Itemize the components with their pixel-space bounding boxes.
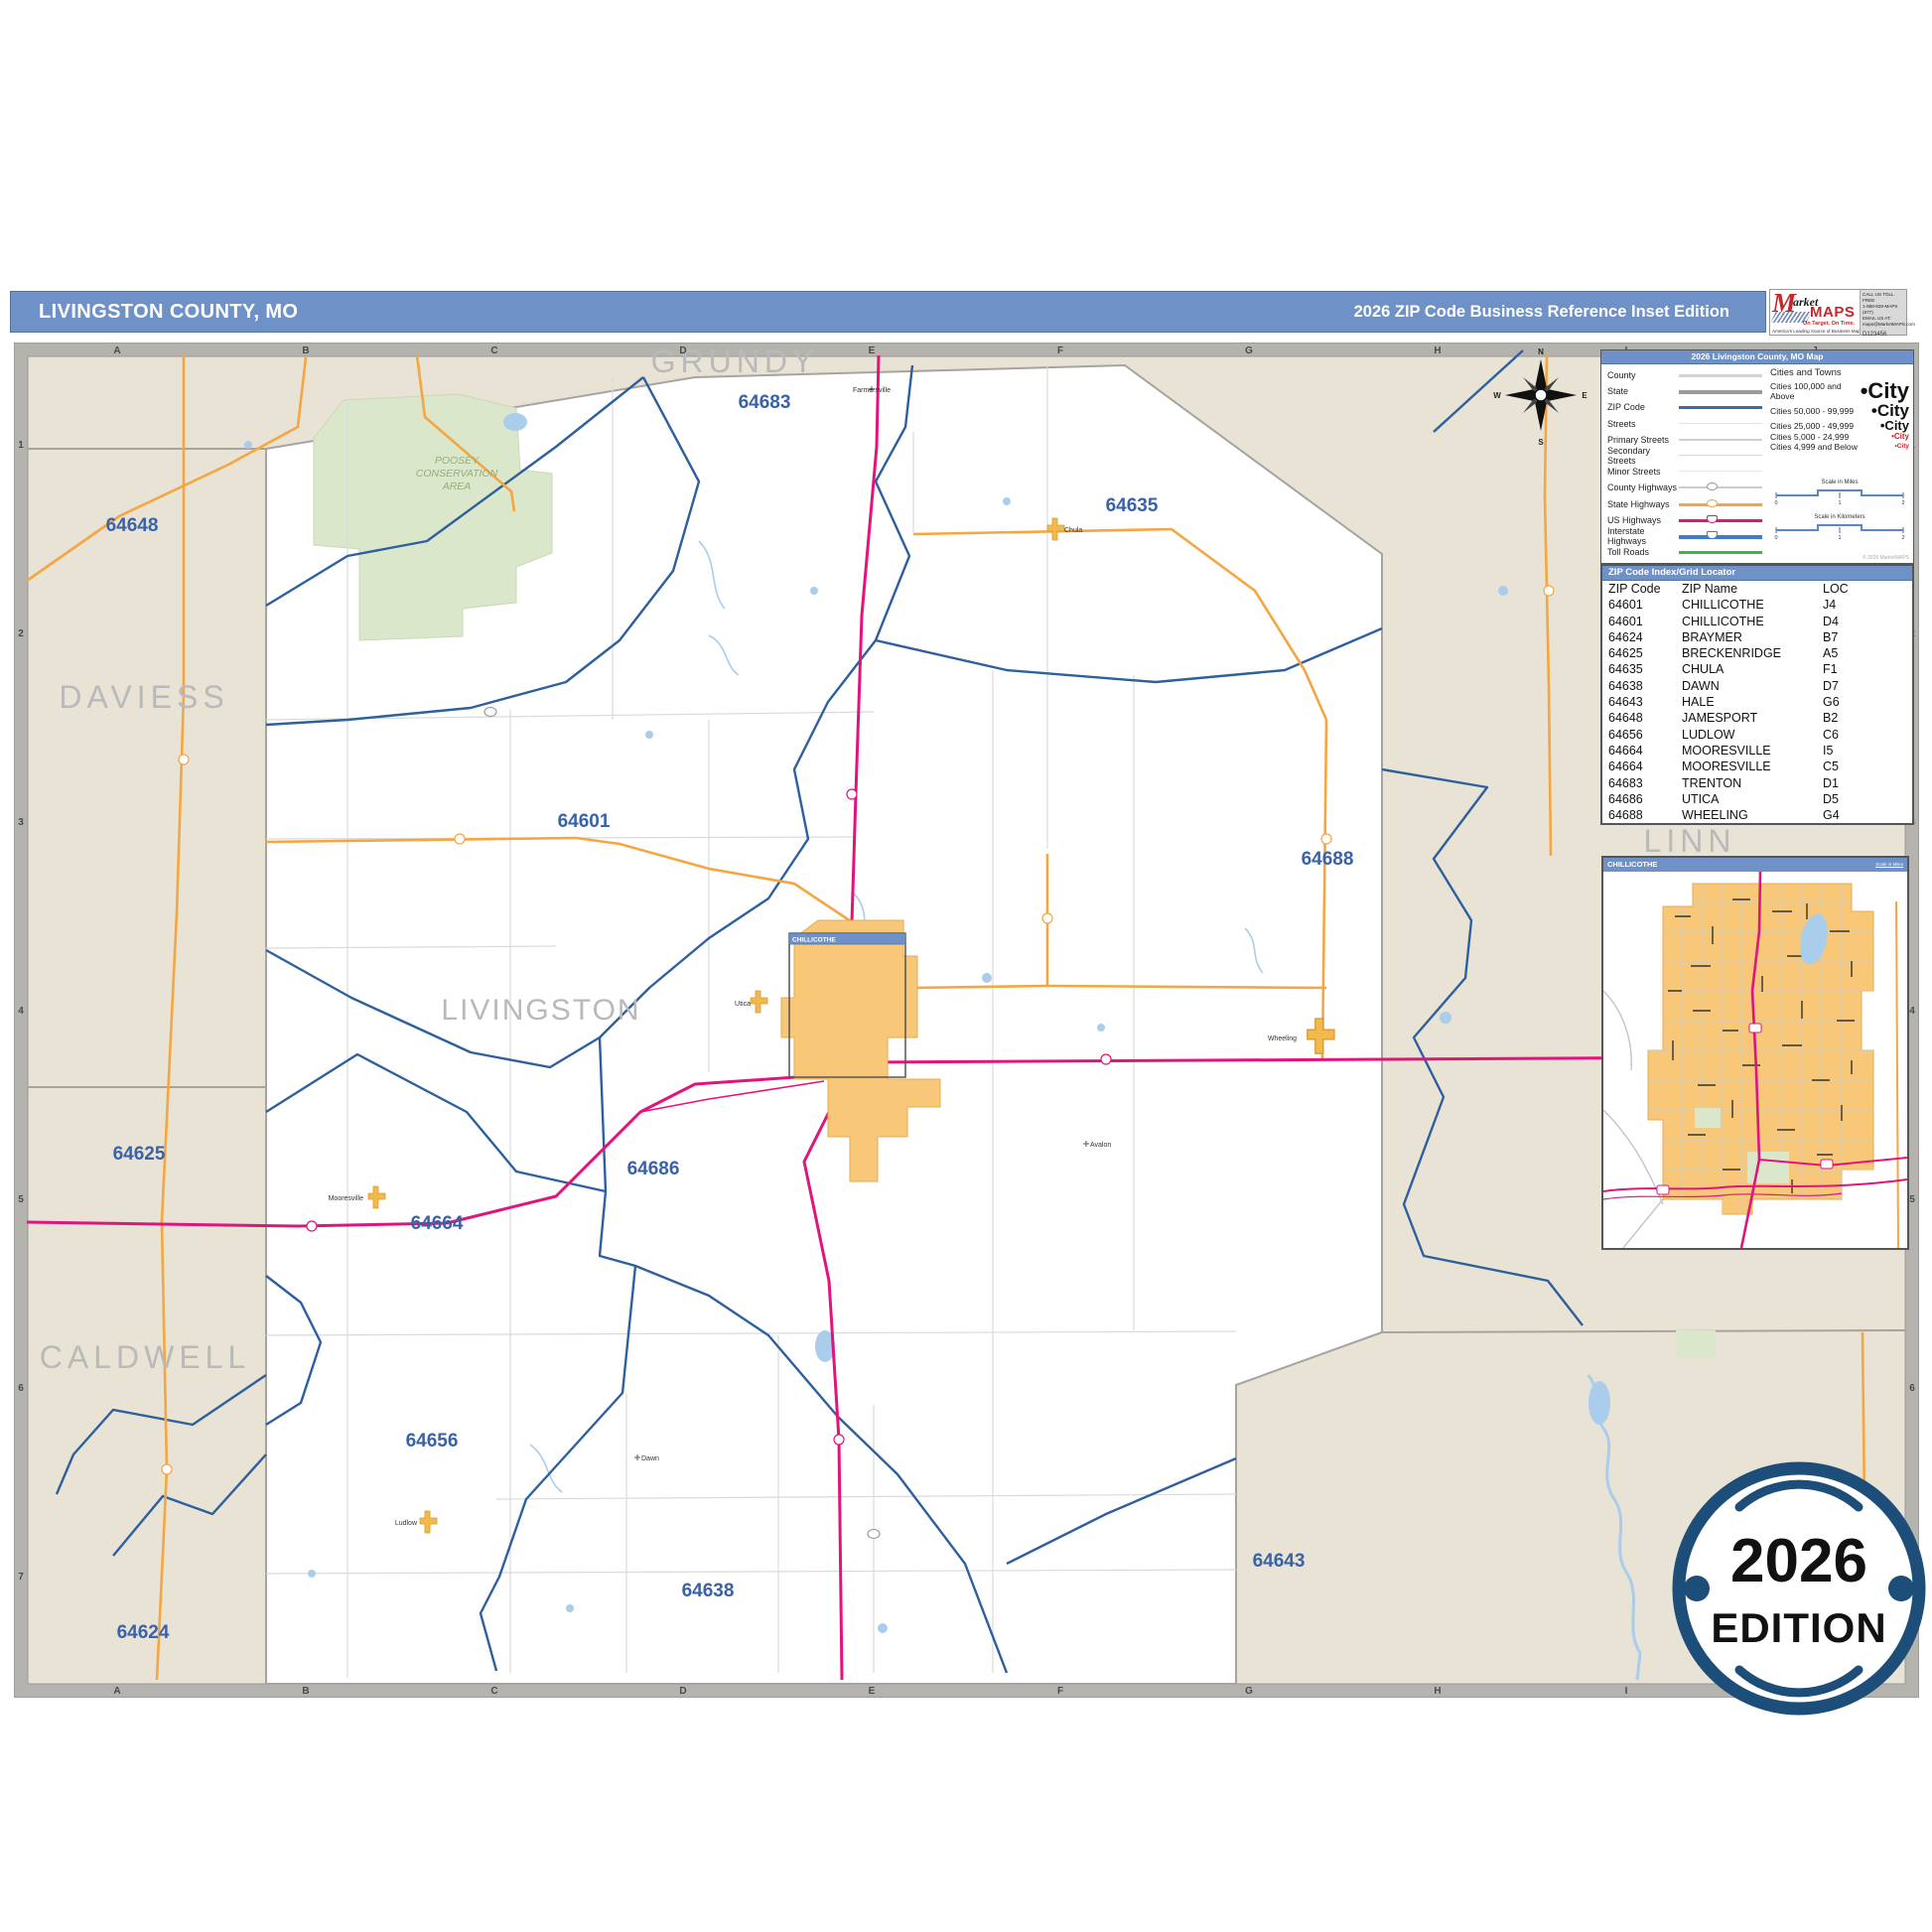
legend-row-label: Minor Streets [1607, 467, 1679, 477]
town-label: Chula [1064, 527, 1082, 534]
legend-line-sample [1679, 419, 1762, 429]
zip-table-row: 64601CHILLICOTHEJ4 [1602, 597, 1912, 613]
title-bar: LIVINGSTON COUNTY, MO 2026 ZIP Code Busi… [10, 291, 1766, 333]
legend-line-sample [1679, 451, 1762, 461]
grid-row-label: 4 [1909, 1006, 1915, 1017]
legend-row-label: County [1607, 370, 1679, 380]
grid-column-label: A [113, 1686, 120, 1697]
scale-tick-label: 0 [1774, 535, 1777, 540]
grid-column-label: F [1057, 1686, 1063, 1697]
zip-index-title: ZIP Code Index/Grid Locator [1602, 566, 1912, 581]
zip-table-cell: 64635 [1608, 661, 1682, 677]
legend-line-sample [1679, 499, 1762, 509]
inset-title: CHILLICOTHE [1607, 858, 1657, 872]
county-label: CALDWELL [40, 1339, 251, 1375]
zip-label: 64688 [1302, 849, 1354, 870]
page-title: LIVINGSTON COUNTY, MO [11, 301, 298, 324]
zip-table-cell: D1 [1823, 775, 1878, 791]
town-label: Mooresville [329, 1195, 364, 1202]
inset-scale-label: Scale in Miles [1875, 862, 1903, 868]
zip-table-row: 64656LUDLOWC6 [1602, 727, 1912, 743]
town-label: Farmersville [853, 387, 891, 394]
grid-column-label: H [1434, 1686, 1441, 1697]
zip-table-cell: 64683 [1608, 775, 1682, 791]
scale-tick-label: 1 [1838, 535, 1841, 540]
legend-row-label: State Highways [1607, 499, 1679, 509]
city-size-sample: •City [1880, 419, 1909, 432]
city-size-row: Cities 4,999 and Below•City [1770, 442, 1909, 452]
zip-table-cell: HALE [1682, 694, 1823, 710]
grid-row-label: 2 [18, 628, 24, 639]
legend-row: Secondary Streets [1607, 448, 1764, 464]
legend-row-label: State [1607, 386, 1679, 396]
legend-row: State Highways [1607, 496, 1764, 512]
zip-table-row: 64643HALEG6 [1602, 694, 1912, 710]
town-label: Dawn [641, 1455, 659, 1462]
city-size-sample: •City [1861, 380, 1909, 402]
town-label: Avalon [1090, 1142, 1111, 1149]
grid-column-label: I [1625, 1686, 1628, 1697]
city-size-sample: •City [1894, 444, 1909, 451]
zip-table-row: 64601CHILLICOTHED4 [1602, 614, 1912, 629]
zip-label: 64683 [739, 392, 791, 413]
zip-table-cell: J4 [1823, 597, 1878, 613]
logo-subline: America's Leading Source of Business Map… [1772, 329, 1860, 334]
legend-row-label: US Highways [1607, 515, 1679, 525]
zip-table-cell: 64643 [1608, 694, 1682, 710]
grid-column-label: F [1057, 345, 1063, 356]
legend-row: County Highways [1607, 480, 1764, 495]
zip-table-cell: B7 [1823, 629, 1878, 645]
area-label: CONSERVATION [416, 468, 498, 480]
zip-table-row: 64664MOORESVILLEI5 [1602, 743, 1912, 759]
svg-text:W: W [1493, 391, 1501, 400]
grid-row-label: 4 [18, 1006, 24, 1017]
zip-table-cell: C5 [1823, 759, 1878, 774]
city-size-label: Cities 5,000 - 24,999 [1770, 432, 1849, 442]
legend-row-label: Interstate Highways [1607, 526, 1679, 546]
svg-text:E: E [1582, 391, 1587, 400]
inset-canvas [1603, 872, 1907, 1248]
legend-row-label: County Highways [1607, 483, 1679, 492]
zip-table-cell: TRENTON [1682, 775, 1823, 791]
legend-cities: Cities and Towns Cities 100,000 and Abov… [1770, 367, 1909, 452]
grid-column-label: B [302, 1686, 309, 1697]
inset-park-2 [1695, 1108, 1721, 1128]
zip-table-cell: 64601 [1608, 614, 1682, 629]
zip-table-cell: D5 [1823, 791, 1878, 807]
us-shield-icon [1707, 515, 1718, 523]
badge-left-dot [1684, 1576, 1710, 1601]
town-label: Utica [735, 1001, 751, 1008]
zip-label: 64638 [682, 1581, 735, 1601]
chillicothe-inset: CHILLICOTHE Scale in Miles [1601, 856, 1909, 1250]
zip-table-row: 64638DAWND7 [1602, 678, 1912, 694]
zip-table-cell: LUDLOW [1682, 727, 1823, 743]
zip-table-cell: G6 [1823, 694, 1878, 710]
zip-table-cell: WHEELING [1682, 807, 1823, 823]
grid-column-label: G [1245, 1686, 1253, 1697]
legend-body: CountyStateZIP CodeStreetsPrimary Street… [1601, 364, 1913, 563]
city-size-sample: •City [1871, 402, 1909, 419]
zip-table-cell: UTICA [1682, 791, 1823, 807]
legend-row-label: Secondary Streets [1607, 446, 1679, 466]
grid-row-label: 1 [18, 440, 24, 451]
zip-table-row: 64624BRAYMERB7 [1602, 629, 1912, 645]
city-size-row: Cities 5,000 - 24,999•City [1770, 432, 1909, 442]
zip-table-cell: JAMESPORT [1682, 710, 1823, 726]
zip-label: 64686 [627, 1159, 680, 1179]
zip-table-cell: CHILLICOTHE [1682, 597, 1823, 613]
zip-label: 64643 [1253, 1551, 1306, 1572]
zip-table-cell: 64688 [1608, 807, 1682, 823]
zip-label: 64624 [117, 1622, 170, 1643]
grid-column-label: D [679, 1686, 686, 1697]
town-label: Ludlow [395, 1520, 418, 1527]
logo-maps: MAPS [1810, 304, 1855, 321]
county-label: LINN [1644, 823, 1736, 859]
svg-text:N: N [1538, 347, 1544, 356]
zip-table-cell: 64664 [1608, 743, 1682, 759]
zip-table-cell: CHILLICOTHE [1682, 614, 1823, 629]
legend-line-sample [1679, 531, 1762, 541]
marketmaps-logo: M arket MAPS On Target. On Time. America… [1769, 289, 1907, 336]
scale-title: Scale in Kilometers [1814, 514, 1864, 520]
zip-table-row: 64683TRENTOND1 [1602, 775, 1912, 791]
county-label: LIVINGSTON [441, 994, 640, 1027]
scale-miles: Scale in Miles012 [1770, 476, 1909, 510]
scale-title: Scale in Miles [1821, 480, 1858, 485]
zip-table-header-cell: ZIP Name [1682, 581, 1823, 597]
scale-kilometers: Scale in Kilometers012 [1770, 510, 1909, 545]
scale-tick-label: 0 [1774, 500, 1777, 505]
city-size-label: Cities 50,000 - 99,999 [1770, 406, 1854, 416]
zip-table-cell: BRAYMER [1682, 629, 1823, 645]
edition-badge: 2026 EDITION [1668, 1457, 1930, 1720]
oval-shield-icon [1707, 483, 1718, 490]
zip-table-cell: BRECKENRIDGE [1682, 645, 1823, 661]
badge-right-dot [1888, 1576, 1914, 1601]
legend-line-sample [1679, 435, 1762, 445]
grid-row-label: 5 [18, 1194, 24, 1205]
scale-tick-label: 2 [1901, 500, 1904, 505]
zip-table-cell: G4 [1823, 807, 1878, 823]
scale-bars: Scale in Miles012 Scale in Kilometers012 [1770, 476, 1909, 545]
inset-title-bar: CHILLICOTHE Scale in Miles [1603, 858, 1907, 872]
zip-table-cell: 64686 [1608, 791, 1682, 807]
inset-park [1747, 1152, 1789, 1183]
badge-year: 2026 [1730, 1527, 1867, 1595]
grid-row-label: 6 [18, 1383, 24, 1394]
grid-row-label: 7 [18, 1572, 24, 1583]
legend-row: Streets [1607, 416, 1764, 432]
zip-table-header-cell: ZIP Code [1608, 581, 1682, 597]
zip-table-row: 64625BRECKENRIDGEA5 [1602, 645, 1912, 661]
city-size-label: Cities 4,999 and Below [1770, 442, 1858, 452]
legend-line-sample [1679, 370, 1762, 380]
svg-text:S: S [1538, 438, 1544, 447]
grid-column-label: B [302, 345, 309, 356]
legend-row: Toll Roads [1607, 544, 1764, 560]
product-code: D123456 [1863, 332, 1904, 338]
city-size-label: Cities 100,000 and Above [1770, 381, 1861, 401]
city-size-row: Cities 50,000 - 99,999•City [1770, 402, 1909, 419]
edition-subtitle: 2026 ZIP Code Business Reference Inset E… [1354, 303, 1765, 322]
zip-table-cell: F1 [1823, 661, 1878, 677]
zip-table-cell: D4 [1823, 614, 1878, 629]
zip-table-header-row: ZIP CodeZIP NameLOC [1602, 581, 1912, 597]
area-label: POOSEY [435, 455, 480, 467]
zip-table-cell: I5 [1823, 743, 1878, 759]
legend-row-label: Toll Roads [1607, 547, 1679, 557]
grid-row-label: 3 [18, 817, 24, 828]
zip-table-cell: 64638 [1608, 678, 1682, 694]
zip-table-cell: 64648 [1608, 710, 1682, 726]
legend-row: Minor Streets [1607, 464, 1764, 480]
zip-label: 64648 [106, 515, 159, 536]
legend-row-label: ZIP Code [1607, 402, 1679, 412]
zip-table-cell: 64656 [1608, 727, 1682, 743]
zip-index-panel: ZIP Code Index/Grid Locator ZIP CodeZIP … [1600, 564, 1914, 825]
zip-table-cell: 64601 [1608, 597, 1682, 613]
zip-table-row: 64635CHULAF1 [1602, 661, 1912, 677]
scale-tick-label: 1 [1838, 500, 1841, 505]
grid-column-label: E [869, 345, 876, 356]
legend-panel: 2026 Livingston County, MO Map CountySta… [1600, 349, 1914, 564]
legend-row: State [1607, 383, 1764, 399]
legend-row: Interstate Highways [1607, 528, 1764, 544]
marketmaps-wordmark: M arket MAPS On Target. On Time. America… [1770, 290, 1860, 335]
city-size-row: Cities 100,000 and Above•City [1770, 380, 1909, 402]
zip-table-row: 64648JAMESPORTB2 [1602, 710, 1912, 726]
badge-edition: EDITION [1711, 1604, 1886, 1651]
logo-tagline: On Target. On Time. [1803, 321, 1855, 327]
zip-index-rows: ZIP CodeZIP NameLOC64601CHILLICOTHEJ4646… [1602, 581, 1912, 823]
zip-label: 64601 [558, 811, 611, 832]
zip-table-cell: CHULA [1682, 661, 1823, 677]
zip-table-cell: DAWN [1682, 678, 1823, 694]
zip-table-row: 64688WHEELINGG4 [1602, 807, 1912, 823]
grid-row-label: 6 [1909, 1383, 1915, 1394]
zip-table-header-cell: LOC [1823, 581, 1878, 597]
zip-table-cell: 64624 [1608, 629, 1682, 645]
cities-header: Cities and Towns [1770, 367, 1909, 378]
scale-tick-label: 2 [1901, 535, 1904, 540]
zip-label: 64656 [406, 1431, 459, 1451]
grid-column-label: A [113, 345, 120, 356]
green-patch [1676, 1330, 1716, 1358]
circle-shield-icon [1707, 499, 1718, 507]
zip-table-cell: 64625 [1608, 645, 1682, 661]
legend-line-sample [1679, 483, 1762, 492]
grid-row-label: 5 [1909, 1194, 1915, 1205]
city-size-sample: •City [1891, 433, 1909, 441]
legend-line-sample [1679, 547, 1762, 557]
legend-line-sample [1679, 402, 1762, 412]
logo-contact-box: CALL US TOLL FREE 1-888-929-MAPS (877) E… [1860, 290, 1906, 335]
grid-column-label: G [1245, 345, 1253, 356]
legend-line-sample [1679, 467, 1762, 477]
legend-title: 2026 Livingston County, MO Map [1601, 350, 1913, 364]
zip-table-cell: MOORESVILLE [1682, 759, 1823, 774]
logo-contact-1: CALL US TOLL FREE [1863, 292, 1904, 304]
inset-indicator-label: CHILLICOTHE [792, 937, 836, 944]
zip-label: 64625 [113, 1144, 166, 1165]
grid-column-label: C [490, 1686, 497, 1697]
area-label: AREA [442, 481, 472, 492]
zip-table-row: 64686UTICAD5 [1602, 791, 1912, 807]
legend-line-sample [1679, 515, 1762, 525]
logo-contact-2: 1-888-929-MAPS (877) [1863, 304, 1904, 316]
legend-row-label: Streets [1607, 419, 1679, 429]
zip-table-row: 64664MOORESVILLEC5 [1602, 759, 1912, 774]
grid-column-label: E [869, 1686, 876, 1697]
zip-table-cell: C6 [1823, 727, 1878, 743]
legend-row: County [1607, 367, 1764, 383]
grid-column-label: D [679, 345, 686, 356]
zip-table-cell: MOORESVILLE [1682, 743, 1823, 759]
legend-row: ZIP Code [1607, 399, 1764, 415]
grid-column-label: C [490, 345, 497, 356]
zip-table-cell: A5 [1823, 645, 1878, 661]
logo-contact-4: maps@MarketMAPS.com [1863, 322, 1904, 328]
city-size-row: Cities 25,000 - 49,999•City [1770, 419, 1909, 432]
legend-copyright: © 2026 MarketMAPS [1863, 555, 1909, 561]
town-label: Wheeling [1268, 1035, 1297, 1042]
city-size-label: Cities 25,000 - 49,999 [1770, 421, 1854, 431]
legend-row-label: Primary Streets [1607, 435, 1679, 445]
legend-line-items: CountyStateZIP CodeStreetsPrimary Street… [1607, 367, 1764, 560]
zip-table-cell: D7 [1823, 678, 1878, 694]
legend-line-sample [1679, 386, 1762, 396]
zip-table-cell: B2 [1823, 710, 1878, 726]
page: { "header": { "title": "LIVINGSTON COUNT… [0, 0, 1932, 1932]
zip-label: 64664 [411, 1213, 464, 1234]
county-label: DAVIESS [59, 679, 228, 715]
grid-column-label: H [1434, 345, 1441, 356]
zip-label: 64635 [1106, 495, 1159, 516]
county-label: GRUNDY [651, 344, 819, 379]
zip-table-cell: 64664 [1608, 759, 1682, 774]
